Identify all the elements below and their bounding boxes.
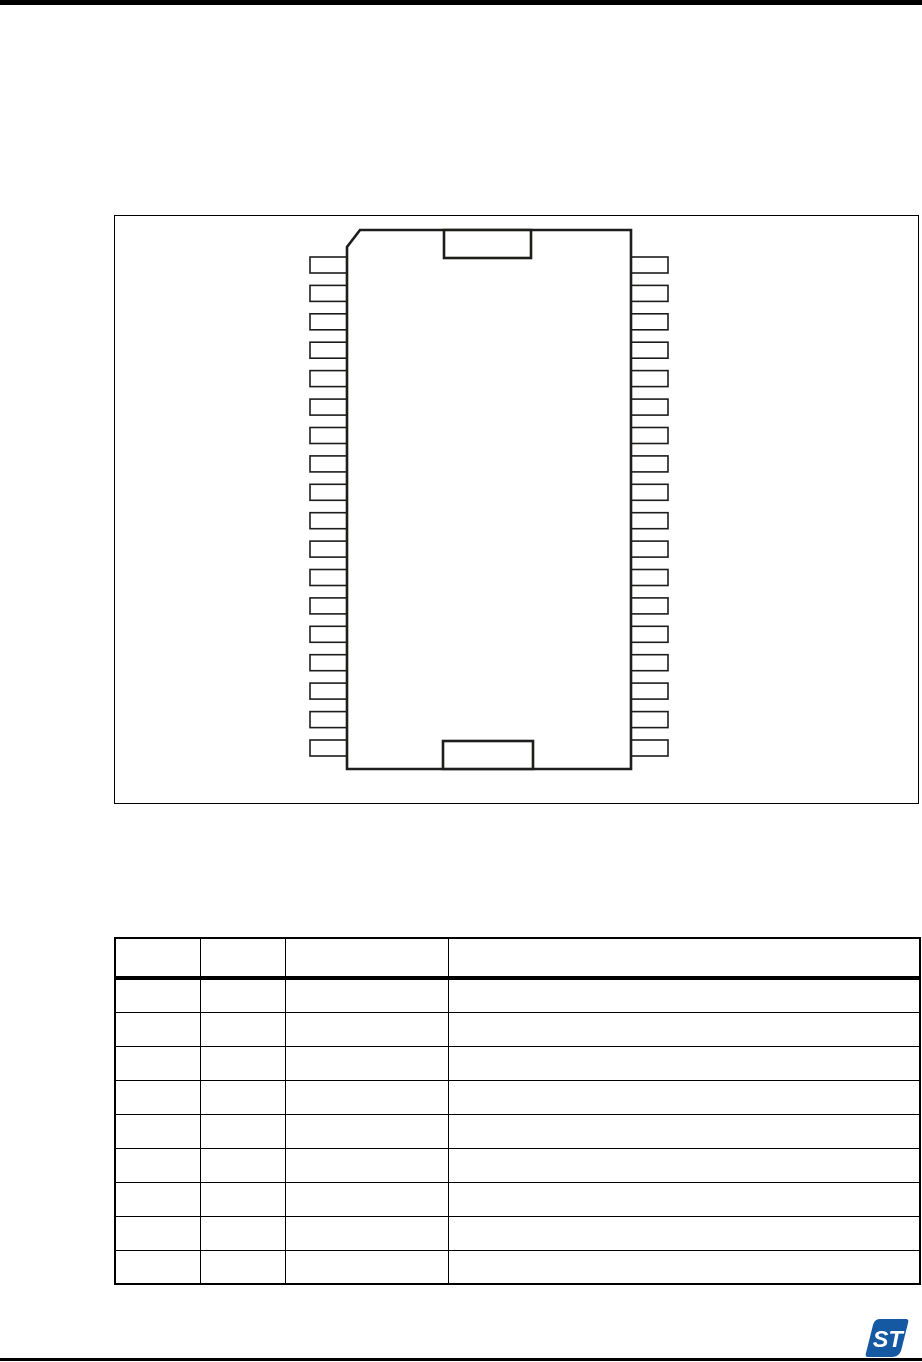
table-cell [200,1182,285,1216]
table-cell [285,1046,448,1080]
chip-pin-right [631,370,668,386]
table-cell [115,1148,200,1182]
chip-pin-left [310,455,347,471]
chip-pin-left [310,740,347,756]
chip-pin-left [310,683,347,699]
bottom-rule [0,1358,922,1361]
chip-pin-left [310,427,347,443]
table-cell [200,1216,285,1250]
chip-pin-left [310,654,347,670]
chip-pin-right [631,541,668,557]
chip-pin-right [631,654,668,670]
table-cell [115,1114,200,1148]
chip-pin-left [310,711,347,727]
table-cell [285,1250,448,1284]
st-logo-text: ST [873,1326,905,1352]
table-cell [200,1012,285,1046]
chip-pin-right [631,569,668,585]
chip-pin-left [310,313,347,329]
table-cell [285,978,448,1012]
table-cell [285,1114,448,1148]
chip-pin-left [310,626,347,642]
table-cell [448,1250,920,1284]
chip-pin-left [310,484,347,500]
chip-pin-right [631,285,668,301]
chip-pin-right [631,342,668,358]
table-header-cell [200,938,285,978]
pin-description-table [114,937,921,1285]
top-rule [0,0,922,5]
chip-pin-left [310,399,347,415]
table-row [115,1182,920,1216]
table-cell [448,1148,920,1182]
chip-pin-left [310,342,347,358]
chip-pin-left [310,257,347,273]
table-cell [448,1012,920,1046]
table-cell [448,1080,920,1114]
chip-pin-right [631,257,668,273]
chip-pin-left [310,597,347,613]
table-row [115,1250,920,1284]
table-row [115,1046,920,1080]
table-cell [200,1046,285,1080]
table-cell [200,978,285,1012]
chip-pin-right [631,740,668,756]
chip-body-outline [347,230,631,769]
table-cell [115,978,200,1012]
chip-pin-right [631,683,668,699]
table-cell [285,1012,448,1046]
datasheet-page: ST [0,0,922,1362]
chip-pin-right [631,626,668,642]
table-header-row [115,938,920,978]
table-cell [115,1182,200,1216]
table-cell [285,1216,448,1250]
table-cell [115,1046,200,1080]
table-cell [200,1148,285,1182]
table-row [115,978,920,1012]
st-logo: ST [865,1319,909,1357]
table-cell [448,1046,920,1080]
chip-pin-right [631,427,668,443]
table-cell [115,1012,200,1046]
chip-pin-left [310,541,347,557]
table-cell [115,1216,200,1250]
chip-pin-left [310,370,347,386]
chip-pin-left [310,569,347,585]
pinout-figure-frame [114,215,919,804]
chip-pin-right [631,484,668,500]
table-cell [285,1182,448,1216]
table-row [115,1148,920,1182]
table-row [115,1216,920,1250]
chip-pin-left [310,512,347,528]
table-header-cell [448,938,920,978]
chip-pin-left [310,285,347,301]
top-index-notch [444,230,531,258]
chip-pin-right [631,399,668,415]
pin-description-table-area [114,937,919,1283]
table-row [115,1012,920,1046]
chip-pin-right [631,455,668,471]
table-cell [200,1114,285,1148]
chip-pin-right [631,313,668,329]
chip-pin-right [631,597,668,613]
table-cell [200,1250,285,1284]
chip-package-diagram [114,215,919,804]
table-cell [285,1148,448,1182]
table-header-cell [115,938,200,978]
bottom-index-notch [443,741,533,769]
chip-pin-right [631,711,668,727]
table-cell [448,1114,920,1148]
table-row [115,1080,920,1114]
table-cell [285,1080,448,1114]
table-row [115,1114,920,1148]
table-cell [448,978,920,1012]
table-cell [115,1250,200,1284]
chip-pin-right [631,512,668,528]
table-cell [200,1080,285,1114]
table-header-cell [285,938,448,978]
table-cell [115,1080,200,1114]
table-cell [448,1182,920,1216]
table-cell [448,1216,920,1250]
